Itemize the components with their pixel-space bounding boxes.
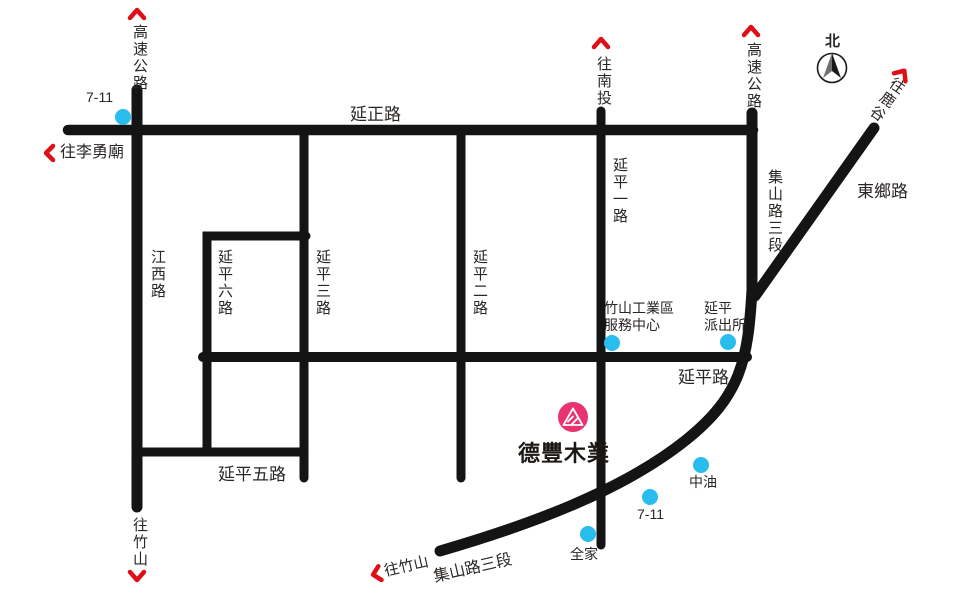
arrow-up-highway-left-icon xyxy=(130,10,144,18)
label-yanping: 延平路 xyxy=(678,368,729,388)
label-poi-service-center-line2: 服務中心 xyxy=(604,317,674,334)
label-poi-police-line2: 派出所 xyxy=(704,317,746,334)
label-poi-police: 延平 派出所 xyxy=(704,300,746,334)
poi-dot-service-center xyxy=(604,335,620,351)
poi-dot-seven-eleven-south xyxy=(642,489,658,505)
label-jiangxi: 江西路 xyxy=(147,249,168,300)
label-highway-left: 高速公路 xyxy=(129,24,150,92)
poi-dot-cpc xyxy=(693,457,709,473)
label-poi-cpc: 中油 xyxy=(689,474,717,490)
label-poi-service-center-line1: 竹山工業區 xyxy=(604,300,674,317)
label-yanping3: 延平三路 xyxy=(312,249,333,317)
brand-name: 德豐木業 xyxy=(518,436,610,468)
label-poi-service-center: 竹山工業區 服務中心 xyxy=(604,300,674,334)
poi-dot-police xyxy=(720,334,736,350)
label-highway-right: 高速公路 xyxy=(743,42,764,110)
label-jishan-right: 集山路三段 xyxy=(764,169,785,254)
brand-logo-icon xyxy=(558,402,588,432)
arrow-up-highway-right-icon xyxy=(744,27,758,35)
label-poi-seven-eleven-south: 7-11 xyxy=(637,506,664,522)
label-to-liyong-temple: 往李勇廟 xyxy=(60,144,124,162)
label-yanping1: 延平一路 xyxy=(609,157,630,225)
arrow-left-zhushan-south-icon xyxy=(372,566,382,581)
label-yanzheng: 延正路 xyxy=(350,105,401,125)
poi-dot-family-mart xyxy=(580,526,596,542)
label-poi-police-line1: 延平 xyxy=(704,300,746,317)
label-compass-north: 北 xyxy=(825,30,840,51)
arrow-up-nantou-icon xyxy=(594,39,608,47)
label-poi-family-mart: 全家 xyxy=(570,546,598,562)
label-yanping2: 延平二路 xyxy=(469,249,490,317)
compass-icon xyxy=(818,53,847,83)
label-to-nantou: 往南投 xyxy=(593,56,614,107)
arrow-left-liyong-icon xyxy=(46,146,53,160)
poi-dot-seven-eleven-north xyxy=(115,109,131,125)
label-yanping6: 延平六路 xyxy=(214,249,235,317)
arrow-down-zhushan-icon xyxy=(130,572,144,580)
label-dongxiang: 東鄉路 xyxy=(857,182,908,202)
label-to-zhushan-west: 往竹山 xyxy=(129,517,150,568)
label-yanping5: 延平五路 xyxy=(218,465,286,485)
label-poi-seven-eleven-north: 7-11 xyxy=(86,89,113,105)
location-map: 高速公路 往南投 高速公路 往鹿谷 集山路三段 江西路 延平六路 延平三路 延平… xyxy=(0,0,960,600)
